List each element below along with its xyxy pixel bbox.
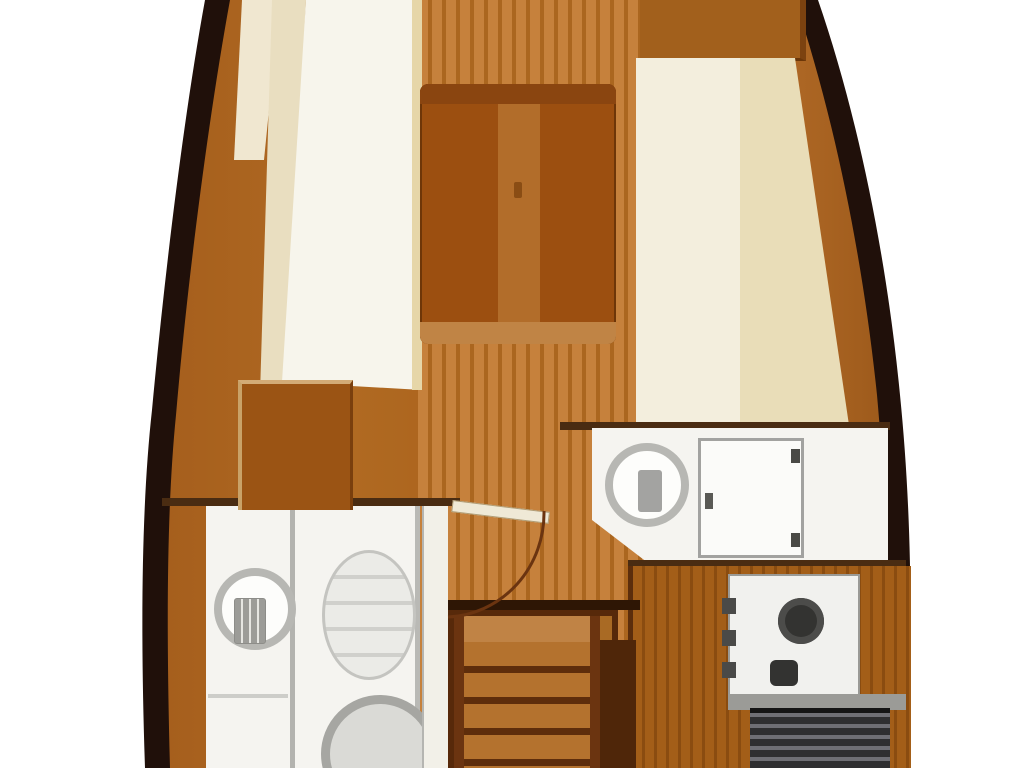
shower-door-hinge-bottom [791, 533, 800, 547]
port-head-divider-wall [290, 506, 295, 768]
companionway-steps [448, 610, 618, 768]
door-swing-layer [440, 505, 560, 625]
saloon-table-starboard-leaf [540, 104, 612, 322]
saloon-table-handle [514, 182, 522, 198]
shower-door-hinge-top [791, 449, 800, 463]
starboard-settee-seat [636, 58, 740, 432]
toilet-lid [322, 550, 416, 680]
stove-burner-small [770, 660, 798, 686]
boat-floorplan [0, 0, 1024, 768]
companionway-rail-port [454, 616, 464, 768]
starboard-head-faucet [638, 470, 662, 512]
port-head-faucet-grille [234, 598, 266, 644]
companionway-treads [454, 642, 600, 768]
saloon-table-aft-cap [420, 322, 616, 344]
stove-pot-clamp-3 [722, 662, 736, 678]
stove-burner-large [778, 598, 824, 644]
saloon-table [420, 84, 616, 344]
port-head-room [206, 506, 420, 768]
nav-locker-top [238, 380, 353, 510]
stove-pot-clamp-2 [722, 630, 736, 646]
galley-stove [728, 574, 860, 700]
stove-pot-clamp-1 [722, 598, 736, 614]
saloon-table-port-leaf [424, 104, 498, 322]
shower-door-handle [705, 493, 713, 509]
galley-appliance-front [750, 708, 890, 768]
saloon-table-forward-cap [420, 84, 616, 104]
door-swing-arc [448, 511, 544, 617]
saloon-table-center-spine [498, 104, 540, 322]
port-counter-seam [208, 694, 288, 698]
steps-side-panel [600, 640, 636, 768]
starboard-forward-cabinet [640, 0, 806, 61]
companionway-rail-starboard [590, 616, 600, 768]
shower-door [698, 438, 804, 558]
starboard-head-room [592, 428, 888, 566]
port-settee-seat [282, 0, 422, 394]
